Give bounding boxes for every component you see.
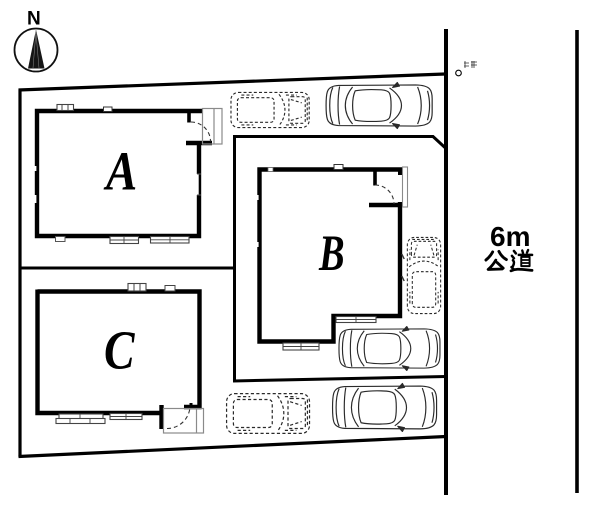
svg-text:B: B bbox=[318, 225, 344, 281]
svg-text:A: A bbox=[103, 141, 137, 202]
svg-text:6m: 6m bbox=[490, 221, 530, 252]
svg-text:N: N bbox=[27, 9, 41, 30]
svg-text:C: C bbox=[104, 320, 136, 381]
